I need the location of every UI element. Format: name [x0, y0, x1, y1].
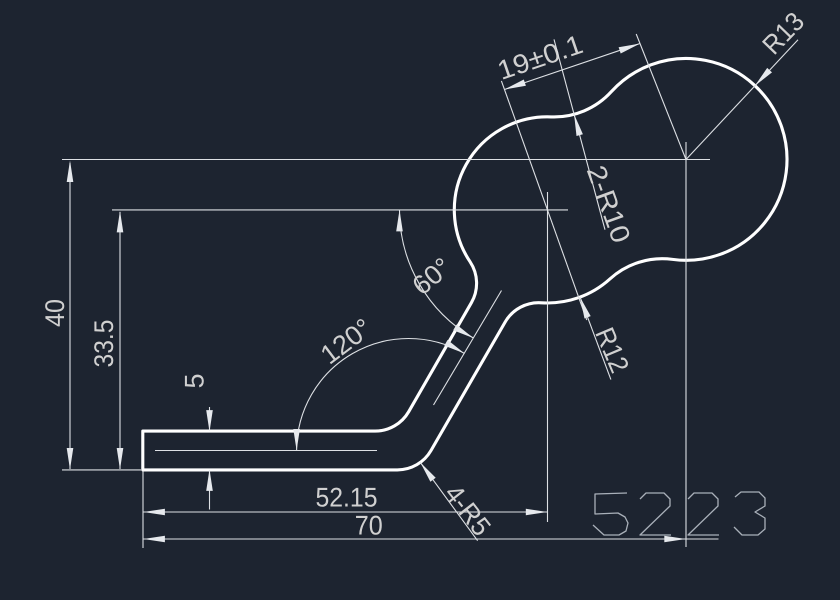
svg-text:52.15: 52.15 — [316, 483, 378, 513]
svg-text:5: 5 — [180, 373, 210, 388]
svg-text:40: 40 — [40, 299, 70, 327]
svg-text:70: 70 — [355, 511, 383, 541]
svg-text:33.5: 33.5 — [89, 320, 119, 368]
